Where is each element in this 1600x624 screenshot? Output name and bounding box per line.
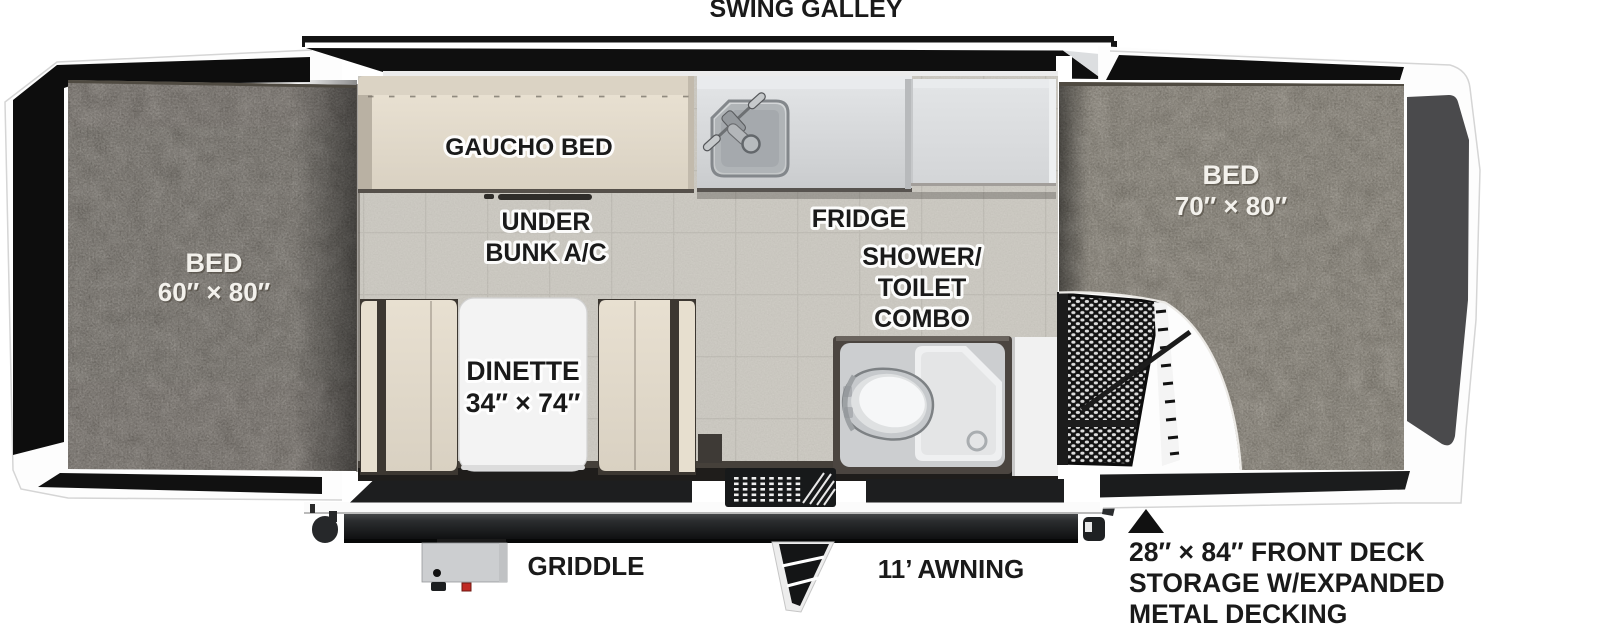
svg-text:70″ × 80″: 70″ × 80″ — [1175, 191, 1287, 221]
svg-text:UNDER: UNDER — [502, 208, 591, 236]
svg-text:34″ × 74″: 34″ × 74″ — [466, 388, 581, 418]
svg-text:BUNK A/C: BUNK A/C — [485, 239, 606, 267]
svg-text:GRIDDLE: GRIDDLE — [528, 551, 645, 581]
svg-text:BED: BED — [185, 248, 242, 278]
svg-text:BED: BED — [1202, 160, 1259, 190]
svg-text:SWING GALLEY: SWING GALLEY — [709, 0, 902, 23]
svg-text:11’ AWNING: 11’ AWNING — [878, 554, 1024, 584]
svg-text:28″ × 84″ FRONT DECK: 28″ × 84″ FRONT DECK — [1129, 537, 1425, 567]
svg-text:FRIDGE: FRIDGE — [812, 205, 906, 233]
svg-text:STORAGE W/EXPANDED: STORAGE W/EXPANDED — [1129, 568, 1445, 598]
svg-text:METAL DECKING: METAL DECKING — [1129, 599, 1347, 624]
svg-text:COMBO: COMBO — [874, 305, 970, 333]
svg-text:SHOWER/: SHOWER/ — [862, 243, 982, 271]
svg-text:60″ × 80″: 60″ × 80″ — [158, 277, 270, 307]
svg-text:GAUCHO BED: GAUCHO BED — [445, 134, 612, 161]
svg-text:DINETTE: DINETTE — [466, 356, 579, 386]
svg-text:TOILET: TOILET — [878, 274, 966, 302]
